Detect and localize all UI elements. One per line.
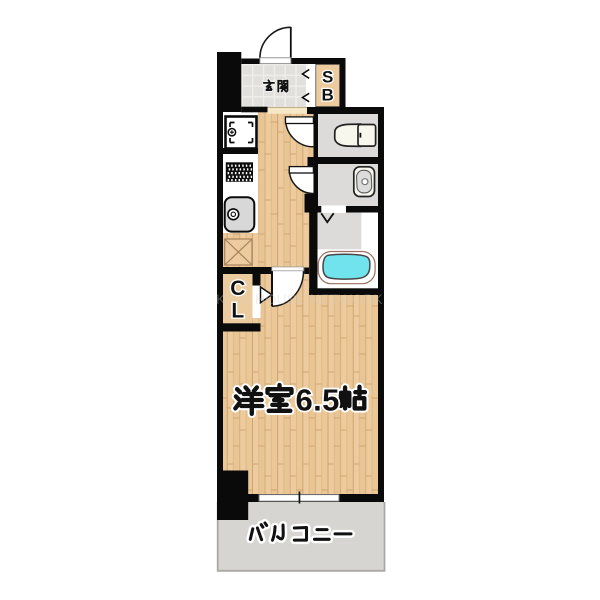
svg-text:C: C xyxy=(230,277,245,300)
svg-text:L: L xyxy=(231,300,244,323)
svg-text:B: B xyxy=(322,86,334,105)
svg-text:S: S xyxy=(322,68,333,87)
svg-text:6.5: 6.5 xyxy=(296,383,340,418)
